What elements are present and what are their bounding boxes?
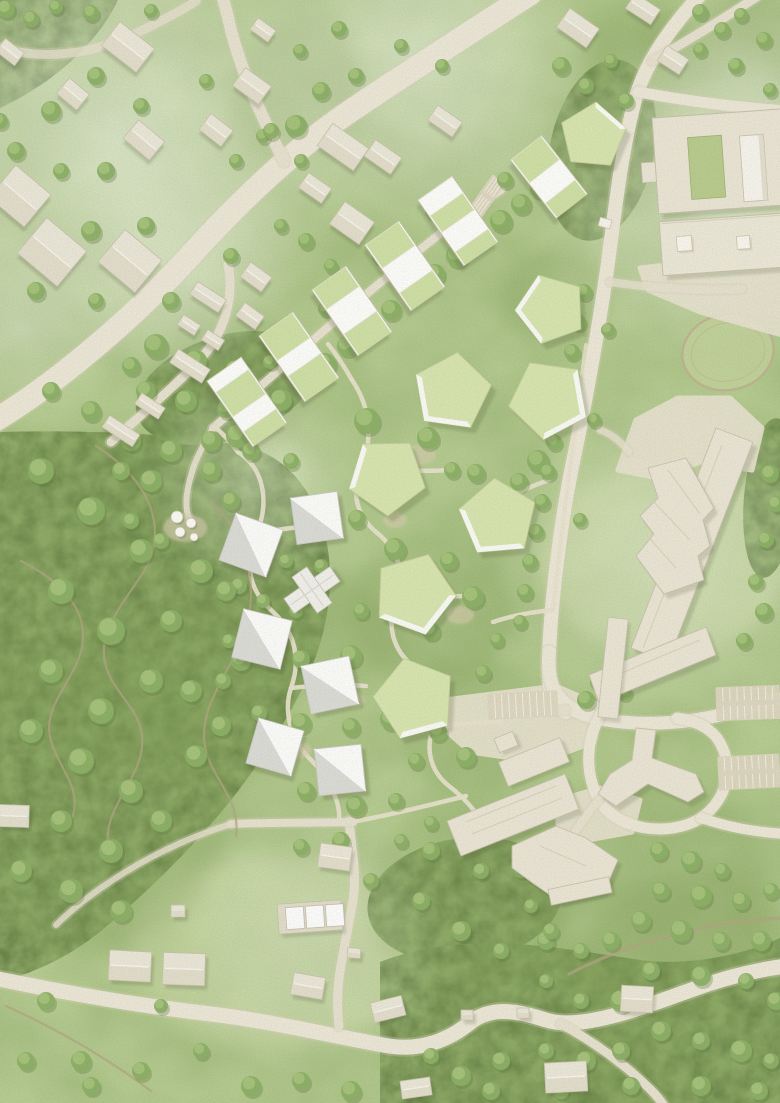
paper-grain — [0, 0, 780, 1103]
site-plan-figure — [0, 0, 780, 1103]
site-plan-map — [0, 0, 780, 1103]
texture-overlay — [0, 0, 780, 1103]
